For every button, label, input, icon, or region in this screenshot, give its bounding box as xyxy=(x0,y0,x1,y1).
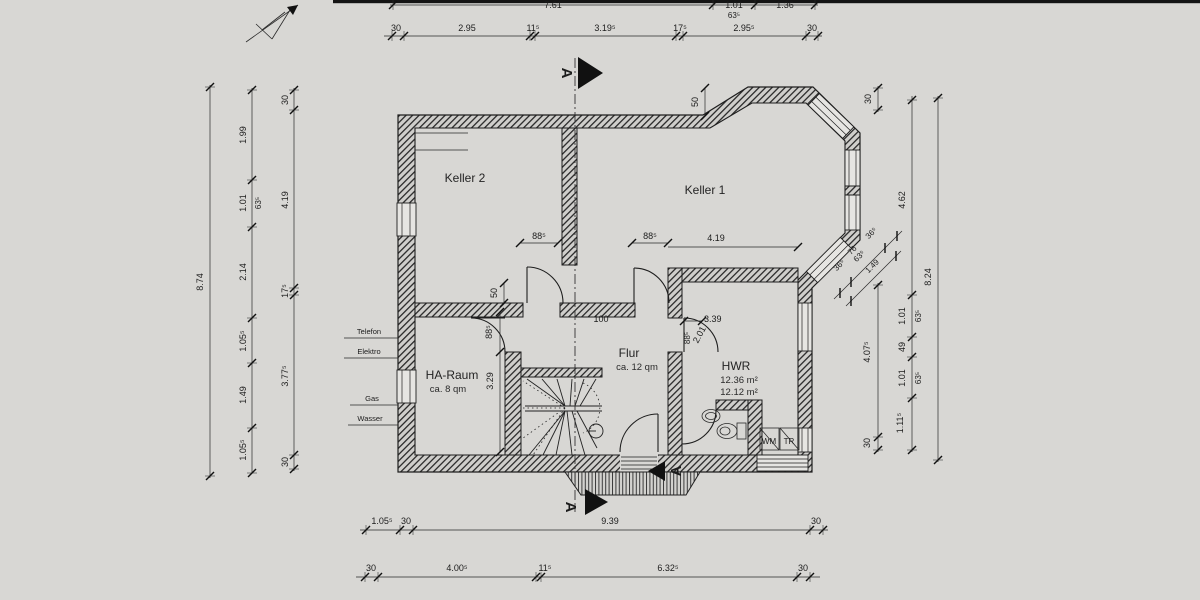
dim-label: 17⁵ xyxy=(673,23,687,33)
dim-label: 1.01 xyxy=(725,0,743,10)
window xyxy=(397,203,416,236)
dim-label: 4.07⁵ xyxy=(862,341,872,363)
dim-label: 30 xyxy=(811,516,821,526)
dryer-label: TR xyxy=(784,437,795,446)
section-letter-mid: A xyxy=(668,465,685,476)
dim-wall-offset: 50 xyxy=(489,288,499,298)
room-label-flur: Flur xyxy=(619,346,640,360)
room-area1-hwr: 12.36 m² xyxy=(720,375,758,386)
dim-label: 63⁵ xyxy=(914,310,923,322)
section-letter-bottom: A xyxy=(562,502,579,513)
utility-elektro: Elektro xyxy=(357,347,380,356)
interior-wall xyxy=(668,352,682,455)
dim-label: 9.39 xyxy=(601,516,619,526)
dim-label: 1.11⁵ xyxy=(895,412,905,433)
dim-label: 1.36 xyxy=(776,0,794,10)
interior-wall xyxy=(682,268,798,282)
dim-ha-wall: 3.29 xyxy=(485,372,495,390)
dim-label: 2.95 xyxy=(458,23,476,33)
scanned-floor-plan: WM TR A A A Keller 2 Keller 1 HA-Raum ca… xyxy=(0,0,1200,600)
utility-gas: Gas xyxy=(365,394,379,403)
dim-label: 63⁵ xyxy=(728,11,740,20)
interior-wall xyxy=(505,352,521,455)
dim-label: 4.00⁵ xyxy=(446,563,468,573)
dim-label: 63⁵ xyxy=(254,197,263,209)
dim-label: 30 xyxy=(798,563,808,573)
dim-label: 63⁵ xyxy=(914,372,923,384)
dim-label: 30 xyxy=(366,563,376,573)
washer-label: WM xyxy=(762,437,777,446)
dim-label: 11⁵ xyxy=(526,23,539,33)
dim-label: 11⁵ xyxy=(538,563,551,573)
room-label-keller1: Keller 1 xyxy=(685,183,726,197)
interior-wall xyxy=(668,268,682,318)
stairwell-wall xyxy=(518,368,602,377)
window xyxy=(798,303,812,351)
dim-label: 1.01 xyxy=(897,307,907,325)
dim-label: 30 xyxy=(807,23,817,33)
window-lightwell xyxy=(757,455,808,471)
dim-label: 1.01 xyxy=(238,194,248,212)
dim-label: 6.32⁵ xyxy=(657,563,679,573)
bay-window xyxy=(845,150,860,230)
dim-keller1-wall: 4.19 xyxy=(707,233,725,243)
dim-label: 49 xyxy=(897,342,907,352)
dim-label: 7.61 xyxy=(544,0,562,10)
dim-stair-opening: 100 xyxy=(593,314,608,324)
dim-label: 8.74 xyxy=(195,273,205,291)
dim-keller1-door: 88⁵ xyxy=(643,231,657,241)
dim-hwr-width: 3.39 xyxy=(704,314,722,324)
dim-label: 30 xyxy=(862,438,872,448)
room-label-ha-raum: HA-Raum xyxy=(426,368,479,382)
dim-label: 2.14 xyxy=(238,263,248,281)
room-label-hwr: HWR xyxy=(722,359,751,373)
dim-label: 1.01 xyxy=(897,369,907,387)
dim-label: 3.77⁵ xyxy=(280,365,290,387)
dim-label: 4.62 xyxy=(897,191,907,209)
wc-wall xyxy=(716,400,748,410)
room-area-flur: ca. 12 qm xyxy=(616,362,658,373)
dim-keller2-door: 88⁵ xyxy=(532,231,546,241)
window xyxy=(397,370,416,403)
dim-label: 4.19 xyxy=(280,191,290,209)
utility-wasser: Wasser xyxy=(357,414,383,423)
dim-label: 30 xyxy=(280,95,290,105)
dim-label: 17⁵ xyxy=(280,284,290,298)
dim-label: 30 xyxy=(280,457,290,467)
floor-plan-svg: WM TR A A A Keller 2 Keller 1 HA-Raum ca… xyxy=(0,0,1200,600)
window xyxy=(798,428,812,452)
dim-label: 30 xyxy=(401,516,411,526)
utility-telefon: Telefon xyxy=(357,327,381,336)
dim-label: 1.49 xyxy=(238,386,248,404)
dim-label: 30 xyxy=(391,23,401,33)
interior-wall xyxy=(415,303,523,317)
dim-ha-door: 88⁵ xyxy=(484,325,494,339)
dim-label: 1.05⁵ xyxy=(238,439,248,461)
section-letter-top: A xyxy=(558,68,575,79)
room-area-ha-raum: ca. 8 qm xyxy=(430,384,467,395)
room-label-keller2: Keller 2 xyxy=(445,171,486,185)
scan-edge xyxy=(333,0,1200,3)
dim-label: 30 xyxy=(863,94,873,104)
dim-label: 1.05⁵ xyxy=(238,330,248,352)
dim-label: 1.99 xyxy=(238,126,248,144)
dim-label: 1.05⁵ xyxy=(371,516,393,526)
dim-label: 3.19⁵ xyxy=(594,23,616,33)
dim-hwr-door: 88⁵ xyxy=(683,332,692,344)
room-area2-hwr: 12.12 m² xyxy=(720,387,758,398)
dim-label: 8.24 xyxy=(923,268,933,286)
dim-label: 2.95⁵ xyxy=(733,23,755,33)
dim-bay-step: 50 xyxy=(690,97,700,107)
